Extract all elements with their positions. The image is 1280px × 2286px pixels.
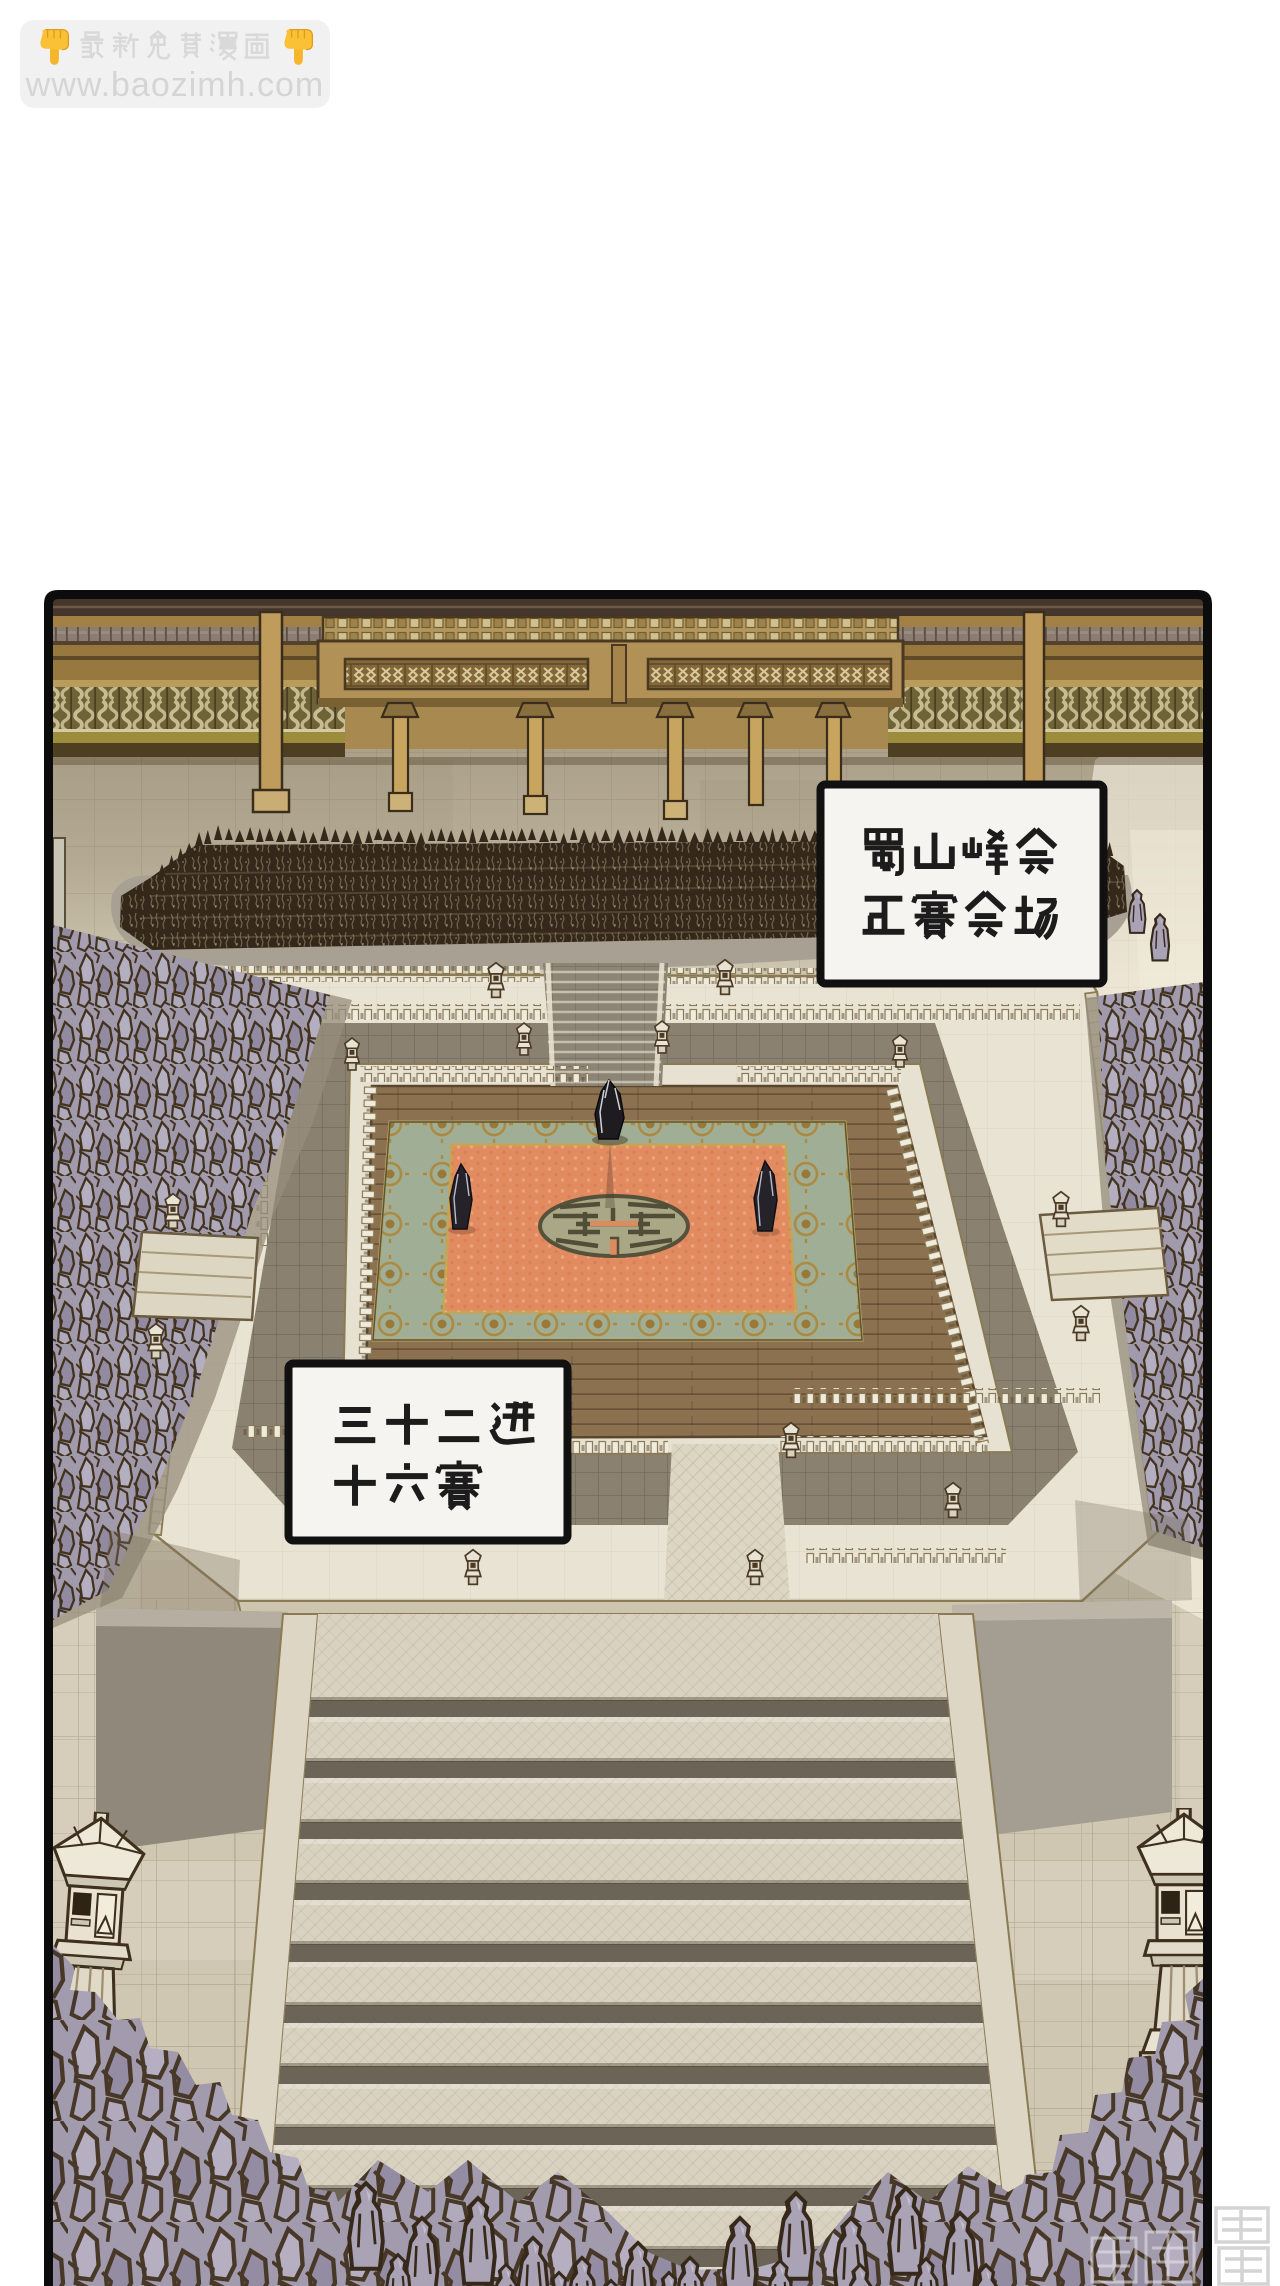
- svg-text:www.baozimh.com: www.baozimh.com: [25, 66, 324, 104]
